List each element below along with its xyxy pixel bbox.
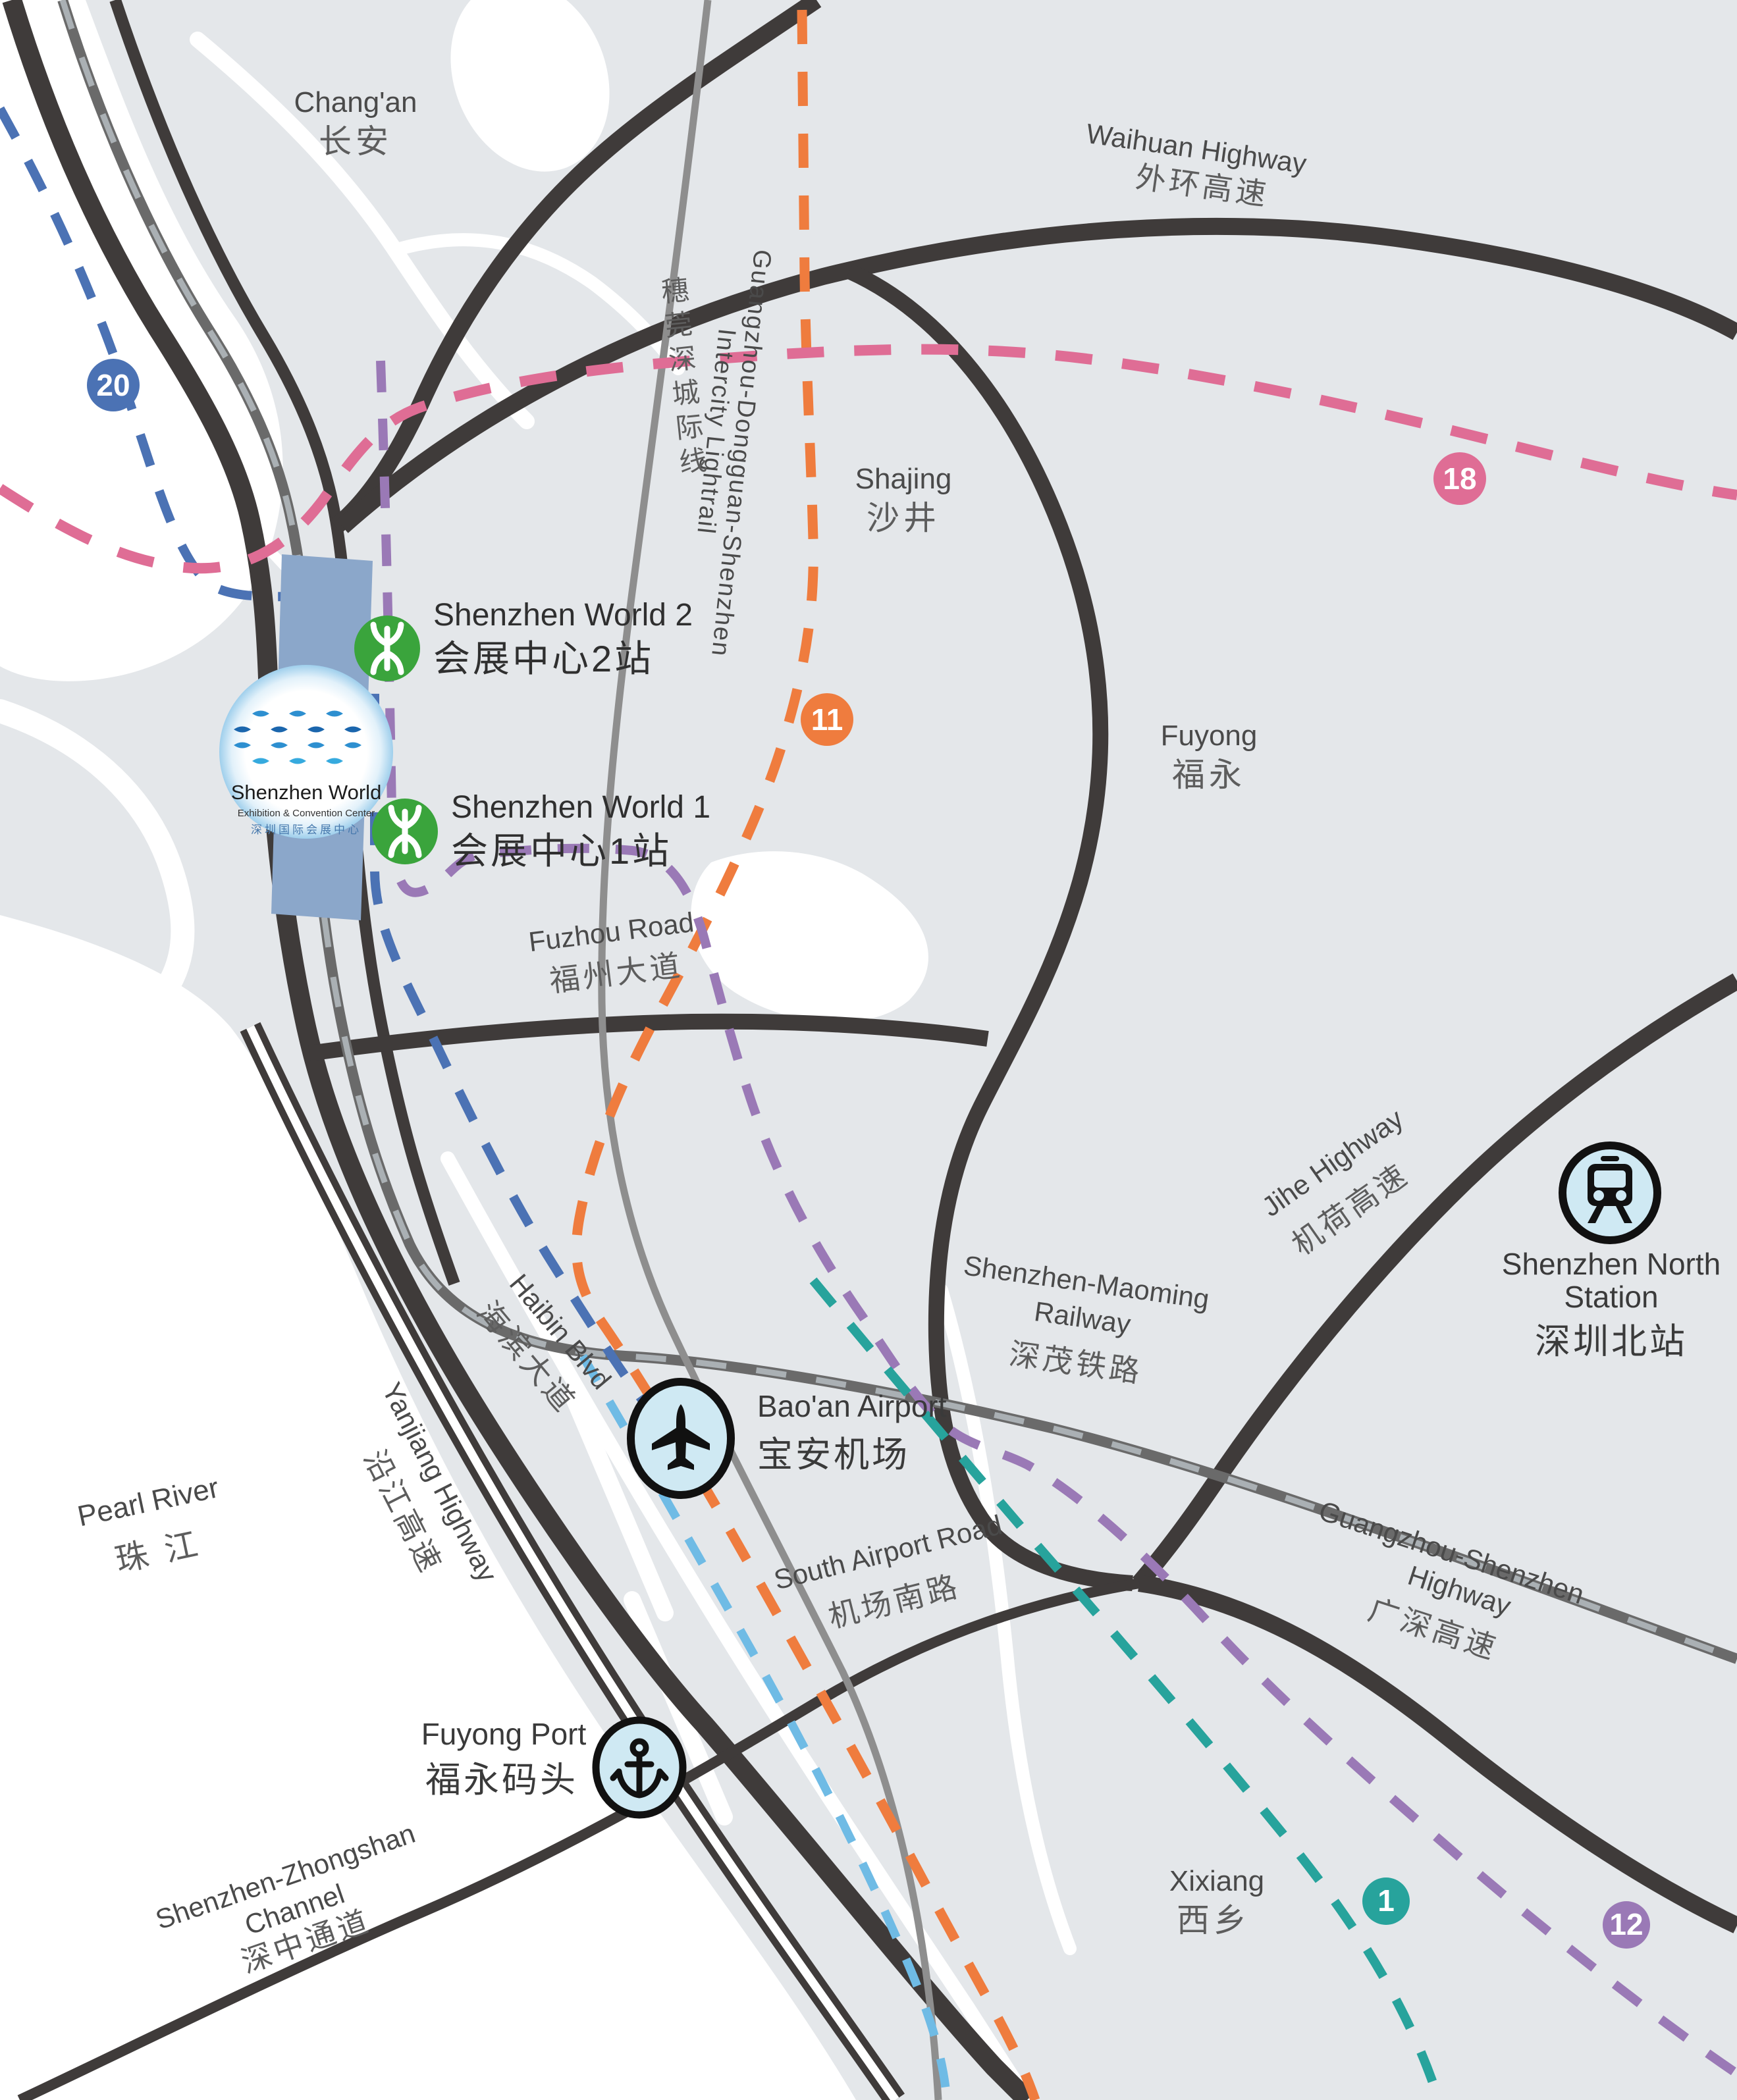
area-changan-zh: 长安 [319, 123, 392, 160]
station-sw2-en: Shenzhen World 2 [433, 598, 693, 633]
badge-line-20-label: 20 [96, 368, 130, 402]
badge-line-12: 12 [1603, 1901, 1650, 1949]
area-shajing-en: Shajing [855, 463, 952, 495]
area-shajing-zh: 沙井 [867, 500, 940, 537]
poi-airport-en: Bao'an Airport [757, 1389, 947, 1423]
badge-line-1-label: 1 [1377, 1883, 1395, 1918]
logo-name: Shenzhen World [231, 781, 382, 804]
area-xixiang-zh: 西乡 [1177, 1902, 1250, 1939]
badge-line-1: 1 [1362, 1877, 1410, 1925]
poi-port-en: Fuyong Port [421, 1717, 587, 1751]
logo-zh: 深圳国际会展中心 [251, 824, 361, 836]
area-fuyong-en: Fuyong [1161, 720, 1258, 752]
area-fuyong-zh: 福永 [1172, 756, 1246, 793]
station-sw1-zh: 会展中心1站 [451, 830, 672, 872]
poi-north-station-zh: 深圳北站 [1535, 1322, 1688, 1361]
badge-line-11-label: 11 [811, 702, 843, 737]
badge-line-12-label: 12 [1609, 1907, 1643, 1941]
map-stage: 20 11 18 1 12 Chang'an 长安 Shajing 沙井 Fuy… [0, 0, 1737, 2100]
poi-airport-zh: 宝安机场 [757, 1435, 910, 1475]
badge-line-11: 11 [801, 693, 853, 746]
metro-station-icon [372, 799, 438, 864]
poi-north-station-en2: Station [1564, 1280, 1658, 1314]
metro-station-icon [354, 616, 420, 681]
poi-north-station-en1: Shenzhen North [1502, 1247, 1721, 1281]
badge-line-18-label: 18 [1443, 461, 1476, 496]
station-sw2-zh: 会展中心2站 [433, 638, 654, 679]
logo-subtitle: Exhibition & Convention Center [238, 808, 375, 819]
poi-port-zh: 福永码头 [425, 1760, 578, 1800]
map-canvas: 20 11 18 1 12 Chang'an 长安 Shajing 沙井 Fuy… [0, 0, 1737, 2100]
shenzhen-world-logo: Shenzhen World Exhibition & Convention C… [219, 665, 393, 839]
badge-line-18: 18 [1433, 452, 1486, 505]
area-changan-en: Chang'an [294, 86, 417, 118]
station-sw1-en: Shenzhen World 1 [451, 790, 710, 825]
area-xixiang-en: Xixiang [1169, 1865, 1264, 1897]
badge-line-20: 20 [87, 359, 140, 411]
